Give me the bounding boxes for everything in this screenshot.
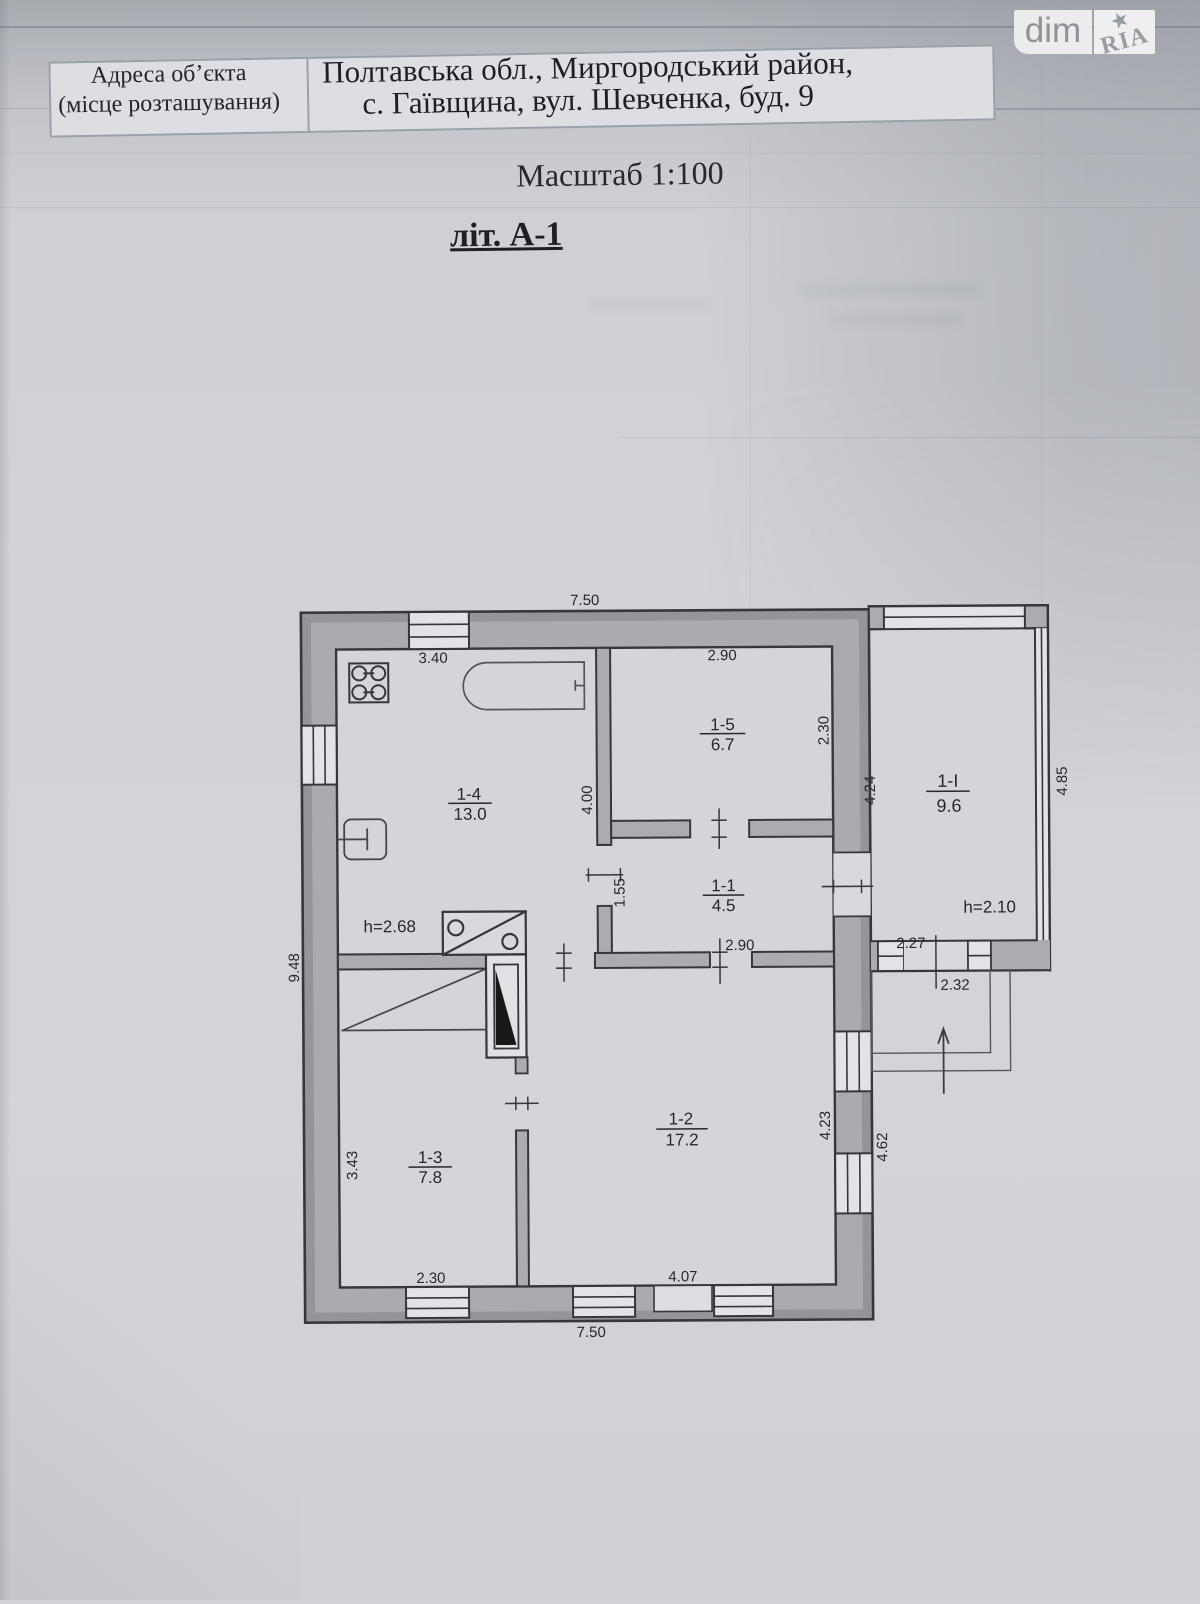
svg-text:2.32: 2.32 [940,977,969,994]
svg-text:9.6: 9.6 [936,796,961,816]
svg-text:4.07: 4.07 [668,1268,697,1285]
svg-text:2.27: 2.27 [896,935,925,952]
svg-text:1.55: 1.55 [611,878,628,907]
svg-text:7.8: 7.8 [418,1168,442,1187]
svg-text:3.40: 3.40 [418,650,447,667]
svg-text:17.2: 17.2 [665,1130,698,1149]
svg-text:4.85: 4.85 [1054,766,1071,795]
svg-text:2.90: 2.90 [707,647,736,664]
svg-text:4.5: 4.5 [712,896,736,915]
svg-text:2.30: 2.30 [815,716,832,745]
svg-text:2.90: 2.90 [725,937,754,954]
svg-text:4.23: 4.23 [817,1111,834,1140]
svg-text:6.7: 6.7 [711,735,735,754]
svg-text:3.43: 3.43 [344,1151,361,1180]
svg-text:13.0: 13.0 [453,805,486,824]
svg-text:2.30: 2.30 [416,1270,445,1287]
svg-text:1-3: 1-3 [418,1148,443,1167]
svg-text:1-4: 1-4 [457,785,482,804]
svg-text:9.48: 9.48 [286,953,303,982]
svg-text:4.00: 4.00 [579,785,596,814]
svg-text:4.62: 4.62 [874,1133,891,1162]
svg-text:7.50: 7.50 [577,1324,606,1341]
svg-text:4.24: 4.24 [862,776,879,805]
svg-text:7.50: 7.50 [570,592,599,609]
svg-text:1-5: 1-5 [710,715,735,734]
svg-text:h=2.10: h=2.10 [963,897,1016,916]
svg-text:1-І: 1-І [937,771,958,791]
svg-text:1-1: 1-1 [711,876,736,895]
svg-text:1-2: 1-2 [669,1109,694,1128]
svg-text:h=2.68: h=2.68 [363,917,416,936]
